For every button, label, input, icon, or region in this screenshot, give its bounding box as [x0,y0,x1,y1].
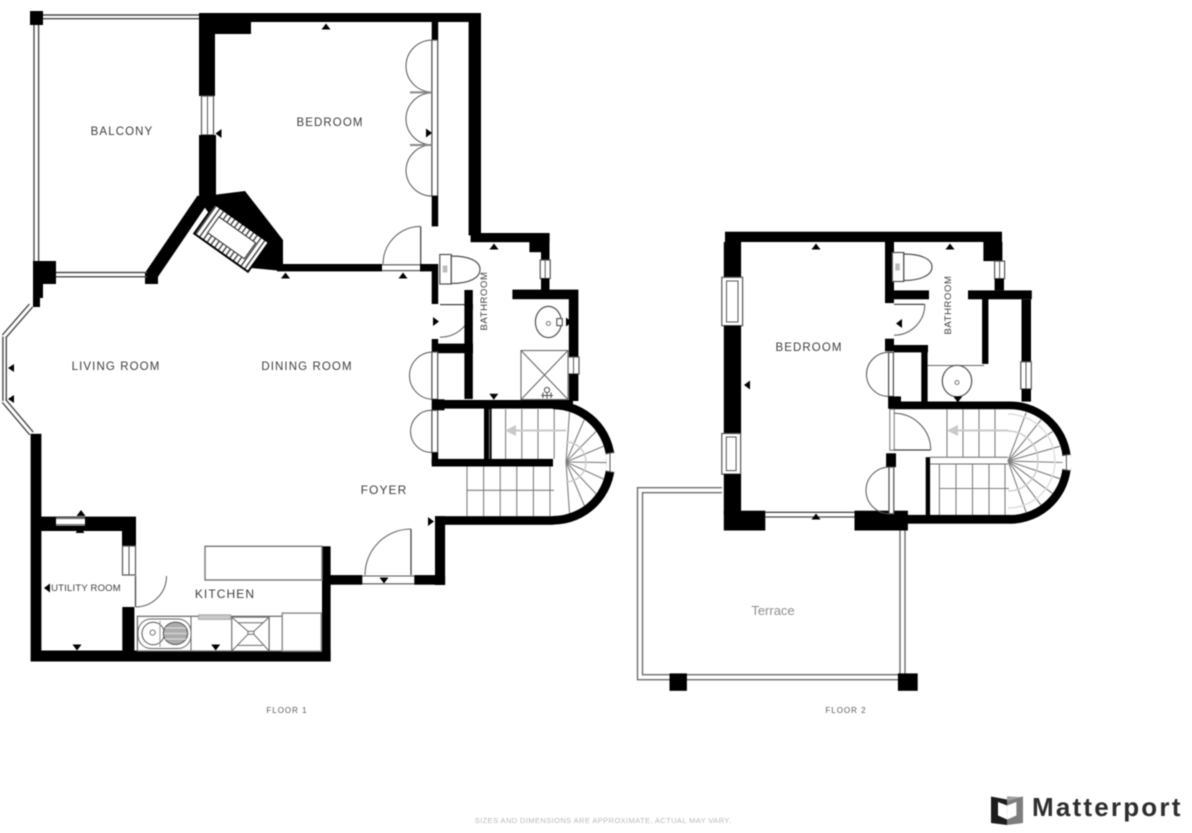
svg-text:LIVING ROOM: LIVING ROOM [72,361,161,373]
svg-text:SIZES AND DIMENSIONS ARE APPRO: SIZES AND DIMENSIONS ARE APPROXIMATE, AC… [475,816,731,825]
svg-text:BEDROOM: BEDROOM [775,342,842,354]
svg-text:FOYER: FOYER [361,483,408,497]
svg-text:FLOOR 1: FLOOR 1 [266,706,307,715]
svg-text:FLOOR 2: FLOOR 2 [825,706,866,715]
svg-text:BEDROOM: BEDROOM [296,117,363,129]
svg-text:DINING ROOM: DINING ROOM [261,361,352,373]
svg-text:Matterport: Matterport [1032,792,1183,822]
svg-text:BALCONY: BALCONY [91,126,154,138]
svg-text:UTILITY ROOM: UTILITY ROOM [51,583,121,594]
svg-text:BATHROOM: BATHROOM [479,272,490,331]
svg-text:Terrace: Terrace [751,603,794,618]
svg-text:BATHROOM: BATHROOM [943,276,954,335]
svg-text:KITCHEN: KITCHEN [195,587,255,601]
